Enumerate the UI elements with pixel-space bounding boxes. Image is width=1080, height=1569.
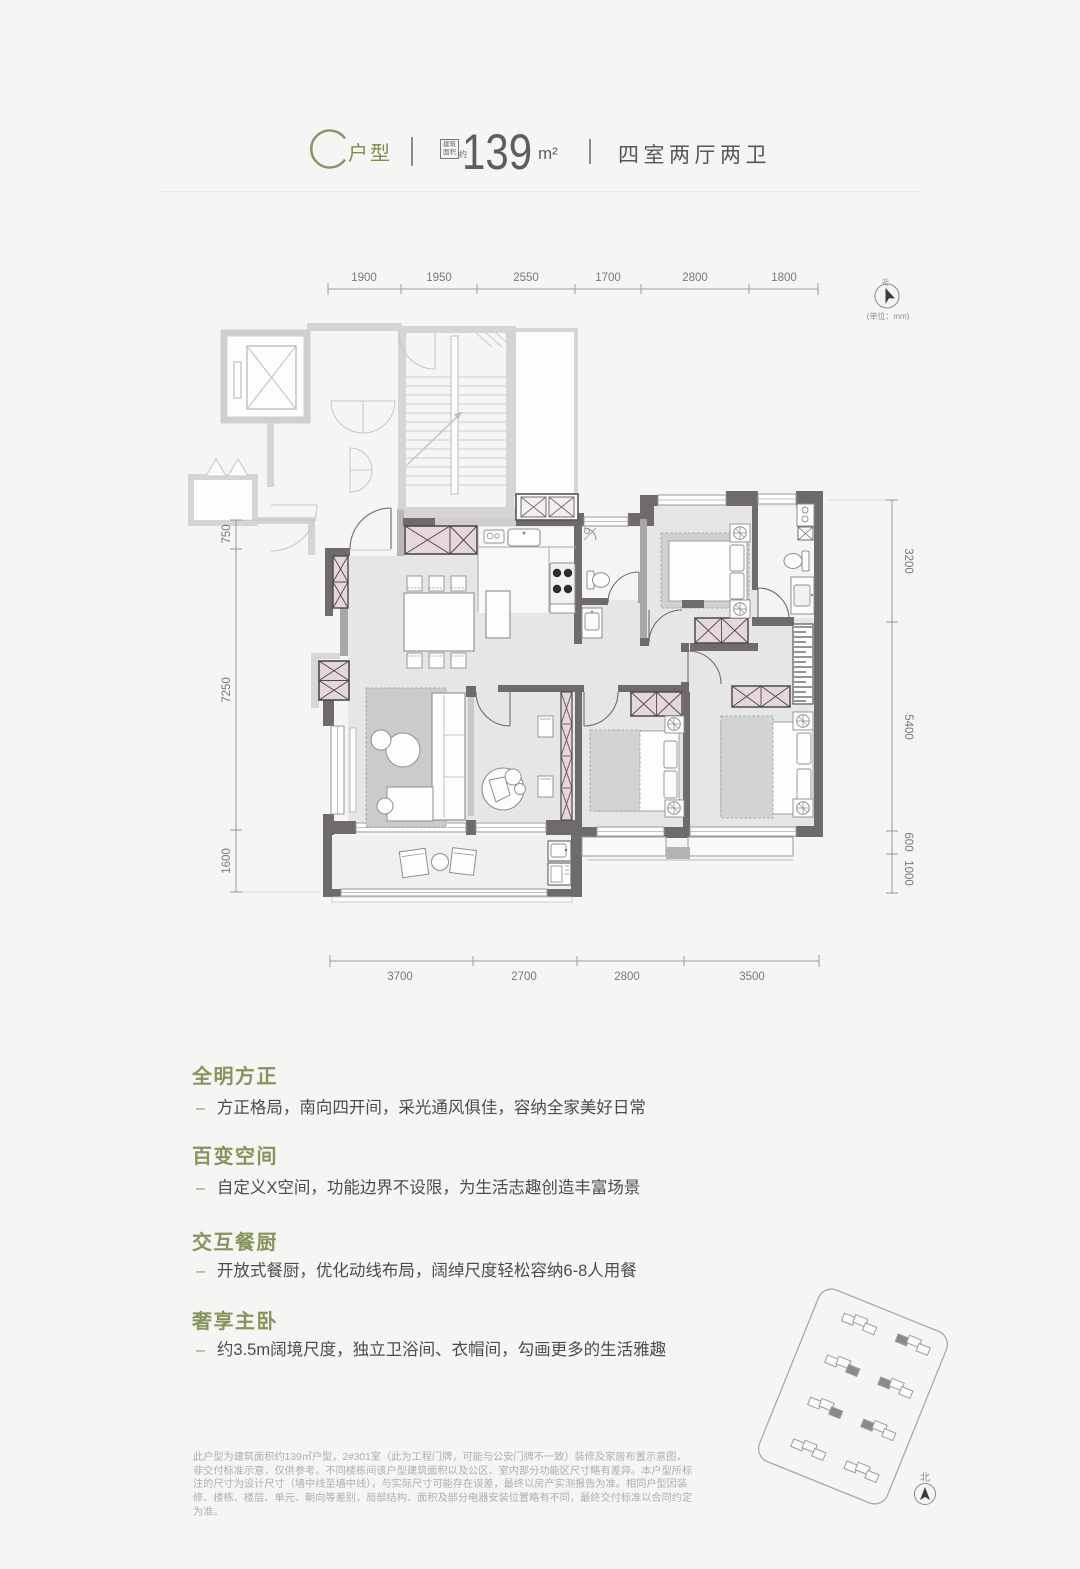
svg-text:3200: 3200	[902, 548, 914, 574]
svg-text:(单位：mm): (单位：mm)	[867, 311, 910, 321]
svg-text:1800: 1800	[771, 272, 797, 284]
svg-text:北: 北	[920, 1472, 930, 1484]
svg-text:1600: 1600	[221, 848, 233, 874]
svg-text:600: 600	[902, 832, 914, 851]
svg-text:1900: 1900	[351, 272, 377, 284]
svg-text:2800: 2800	[682, 272, 708, 284]
svg-text:750: 750	[221, 524, 233, 543]
svg-text:2700: 2700	[511, 971, 537, 983]
svg-text:1700: 1700	[595, 272, 621, 284]
svg-text:1000: 1000	[902, 860, 914, 886]
svg-text:1950: 1950	[426, 272, 452, 284]
svg-text:北: 北	[880, 276, 891, 287]
svg-text:3500: 3500	[739, 971, 765, 983]
svg-text:2550: 2550	[513, 272, 539, 284]
svg-text:5400: 5400	[902, 714, 914, 740]
svg-text:7250: 7250	[221, 677, 233, 703]
svg-text:3700: 3700	[387, 971, 413, 983]
svg-text:2800: 2800	[614, 971, 640, 983]
